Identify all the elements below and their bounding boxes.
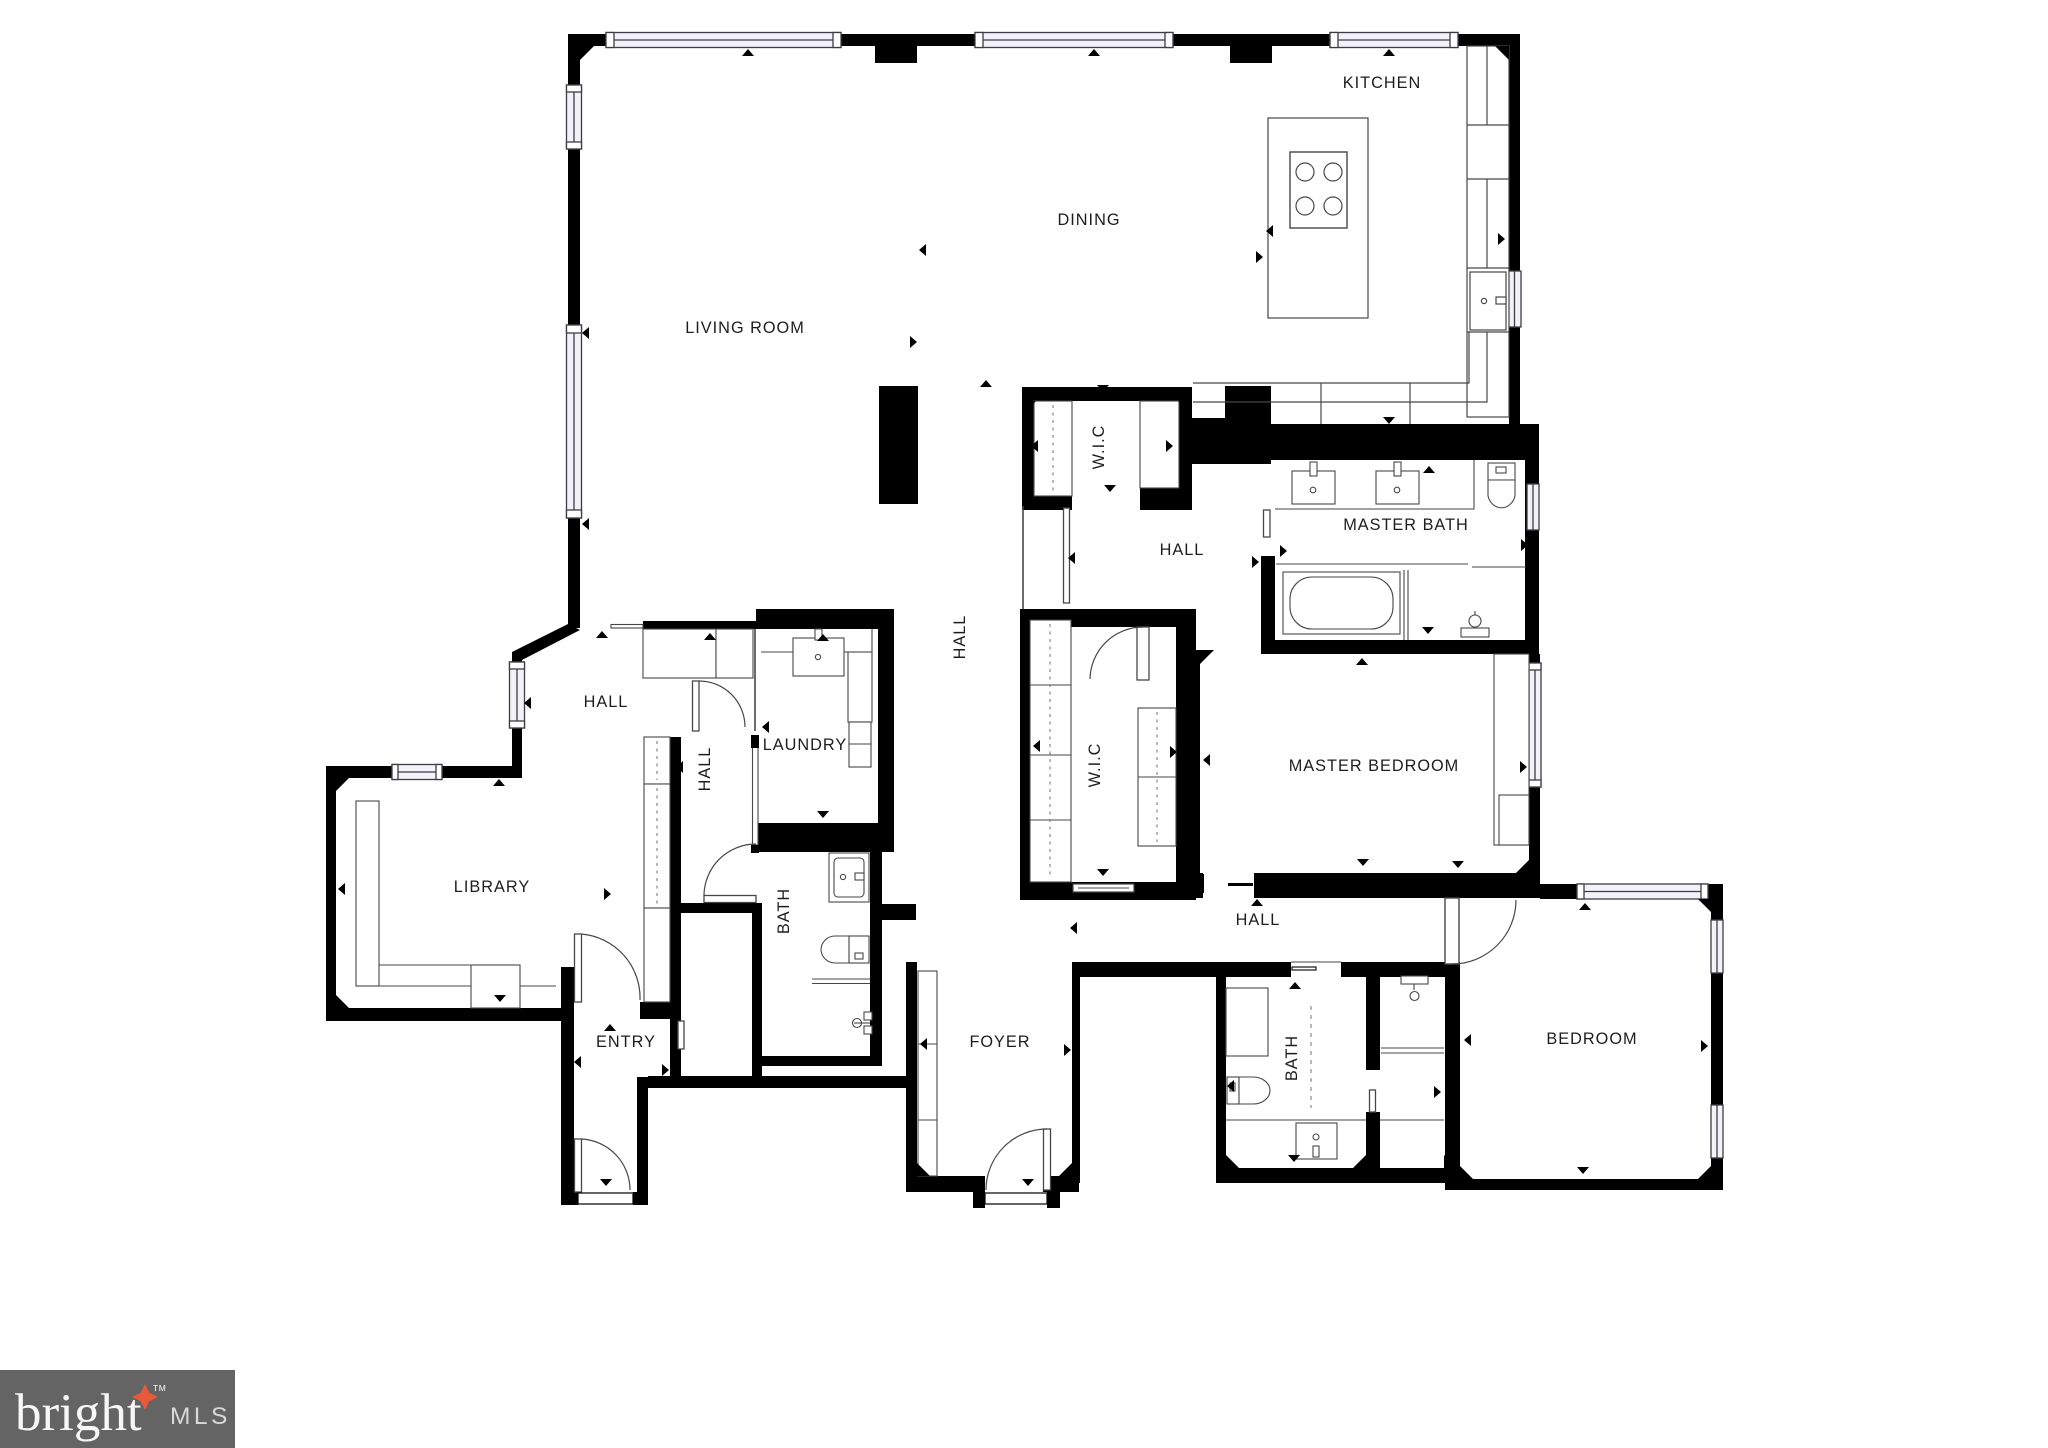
svg-text:MLS: MLS — [170, 1403, 231, 1430]
svg-text:LIBRARY: LIBRARY — [454, 878, 530, 896]
svg-text:LIVING ROOM: LIVING ROOM — [685, 319, 805, 337]
svg-text:HALL: HALL — [584, 693, 629, 711]
svg-text:FOYER: FOYER — [969, 1033, 1030, 1051]
svg-text:W.I.C: W.I.C — [1086, 743, 1104, 788]
svg-text:HALL: HALL — [1160, 541, 1205, 559]
svg-text:bright: bright — [15, 1384, 142, 1442]
svg-text:HALL: HALL — [951, 615, 969, 660]
svg-text:BATH: BATH — [775, 888, 793, 934]
svg-text:HALL: HALL — [1236, 911, 1281, 929]
svg-text:KITCHEN: KITCHEN — [1343, 74, 1421, 92]
svg-text:DINING: DINING — [1058, 211, 1121, 229]
svg-text:BATH: BATH — [1283, 1035, 1301, 1081]
svg-text:MASTER BEDROOM: MASTER BEDROOM — [1289, 757, 1460, 775]
svg-text:LAUNDRY: LAUNDRY — [763, 736, 848, 754]
svg-text:BEDROOM: BEDROOM — [1546, 1030, 1637, 1048]
svg-text:HALL: HALL — [696, 747, 714, 792]
svg-text:ENTRY: ENTRY — [596, 1033, 656, 1051]
svg-text:W.I.C: W.I.C — [1090, 425, 1108, 470]
svg-text:MASTER BATH: MASTER BATH — [1343, 516, 1469, 534]
svg-text:TM: TM — [153, 1383, 166, 1393]
